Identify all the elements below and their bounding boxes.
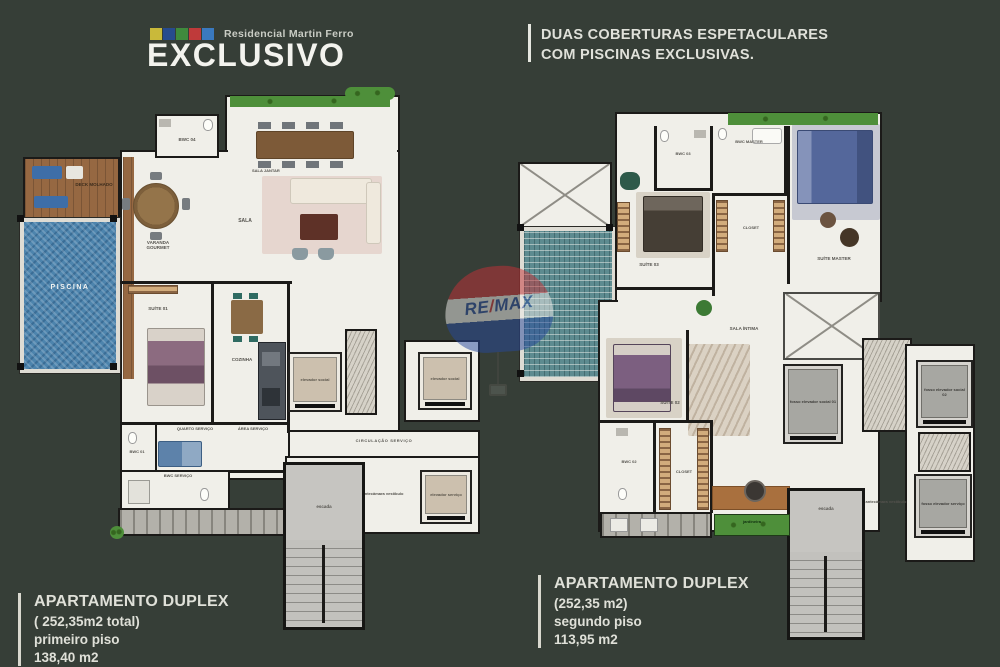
ac-unit (640, 518, 658, 532)
label-jardineira: jardineira (722, 520, 782, 525)
round-table (133, 183, 179, 229)
label-closet-master: CLOSET (728, 226, 774, 231)
balloon-basket (489, 384, 507, 396)
wall (615, 287, 715, 290)
dining-table (256, 131, 354, 159)
chair (122, 198, 130, 210)
elevator-shaft-wall (345, 329, 377, 415)
chairs-row (233, 336, 261, 342)
label-escada: escada (295, 504, 353, 509)
toilet (618, 488, 627, 500)
wardrobe (617, 202, 630, 252)
sofa (366, 182, 381, 244)
armchair (318, 248, 334, 260)
poster-canvas: Residencial Martin Ferro EXCLUSIVO DUAS … (0, 0, 1000, 667)
tagline: DUAS COBERTURAS ESPETACULARES COM PISCIN… (541, 25, 828, 66)
room-circulacao (288, 430, 480, 458)
elevator-door (923, 420, 966, 424)
elevator-door (790, 436, 836, 440)
toilet (718, 128, 727, 140)
void-open-area (518, 162, 612, 228)
lounger (34, 196, 68, 208)
label-bwc04: BWC 04 (155, 137, 219, 142)
plants (345, 87, 395, 100)
garden (714, 514, 790, 536)
caption-area-total: (252,35 m2) (554, 595, 788, 613)
tagline-bar (528, 24, 531, 62)
wall (120, 422, 290, 425)
bed (158, 441, 202, 467)
stove (262, 388, 280, 406)
pool-corner (17, 363, 24, 370)
label-suite-master: SUÍTE MASTER (798, 256, 870, 261)
armchair (292, 248, 308, 260)
label-area-servico: ÁREA SERVIÇO (228, 427, 278, 432)
chairs-row (258, 122, 352, 129)
label-bwc03: BWC 03 (656, 152, 710, 157)
sink (616, 428, 628, 436)
tv-console (300, 214, 338, 240)
balloon-rope (497, 352, 499, 384)
caption-second-floor: APARTAMENTO DUPLEX (252,35 m2) segundo p… (538, 575, 788, 648)
label-bwc01: BWC 01 (121, 450, 153, 455)
wall (710, 126, 713, 190)
kitchen-table (231, 300, 263, 334)
caption-area-total: ( 252,35m2 total) (34, 613, 273, 631)
label-deck: DECK MOLHADO (70, 182, 118, 187)
toilet (660, 130, 669, 142)
caption-area: 113,95 m2 (554, 631, 788, 649)
chairs-row (233, 293, 261, 299)
caption-title: APARTAMENTO DUPLEX (34, 593, 273, 611)
pool-corner (110, 215, 117, 222)
wardrobe (128, 285, 178, 294)
label-suite01: SUÍTE 01 (136, 306, 180, 311)
wall (686, 330, 689, 422)
wall (654, 188, 713, 191)
elevator-door (921, 530, 965, 534)
elevator-servico: elevador serviço (420, 470, 472, 524)
pool-corner (110, 363, 117, 370)
plants (620, 172, 640, 190)
bed (643, 196, 703, 252)
pool-corner (517, 224, 524, 231)
plants (696, 300, 712, 316)
stair-rail (322, 545, 325, 623)
sink (694, 130, 706, 138)
label-cozinha: COZINHA (222, 357, 262, 362)
sink (159, 119, 171, 127)
label-varanda-gourmet: VARANDA GOURMET (139, 240, 177, 251)
elevator-shaft-wall (918, 432, 971, 472)
wall (211, 283, 214, 424)
elevator-door (425, 402, 465, 406)
wall (654, 126, 657, 190)
wardrobe (773, 200, 785, 252)
elevator-pit-social-2: fosso elevador social 02 (916, 360, 973, 428)
lounger (66, 166, 83, 179)
wall (787, 126, 790, 284)
balloon-max: MAX (493, 292, 534, 316)
pool-corner (606, 224, 613, 231)
label-sala: SALA (228, 218, 262, 224)
caption-first-floor: APARTAMENTO DUPLEX ( 252,35m2 total) pri… (18, 593, 273, 666)
label-antecamara: antecâmara vestíbulo (358, 492, 408, 497)
chairs-row (258, 161, 352, 168)
lounger (32, 166, 62, 179)
label-escada-2: escada (800, 506, 852, 511)
label-bwc-servico: BWC SERVIÇO (146, 474, 210, 479)
elevator-pit-servico: fosso elevador serviço (914, 474, 972, 538)
room-piscina (20, 218, 120, 373)
wall (120, 281, 292, 284)
caption-floor: primeiro piso (34, 631, 273, 649)
caption-area: 138,40 m2 (34, 649, 273, 667)
planter-strip (728, 113, 878, 125)
label-bwc-master: BWC MASTER (714, 140, 784, 145)
pool-corner (17, 215, 24, 222)
sofa (290, 178, 372, 204)
wall (653, 423, 656, 513)
label-circulacao: CIRCULAÇÃO SERVIÇO (300, 439, 468, 444)
elevator-door (427, 516, 465, 520)
wardrobe (716, 200, 728, 252)
sink (262, 352, 280, 366)
wardrobe (659, 428, 671, 510)
label-quarto-servico: QUARTO SERVIÇO (170, 427, 220, 432)
pouf (840, 228, 859, 247)
toilet (203, 119, 213, 131)
tagline-line1: DUAS COBERTURAS ESPETACULARES (541, 25, 828, 45)
shower (128, 480, 150, 504)
chair (182, 198, 190, 210)
wall (712, 193, 787, 196)
chair (150, 232, 162, 240)
balcony-edge (118, 508, 286, 536)
bed (797, 130, 873, 204)
elevator-pit-label: fosso elevador serviço (919, 479, 967, 528)
caption-floor: segundo piso (554, 613, 788, 631)
remax-watermark: RE/MAX (445, 266, 560, 401)
headline-exclusivo: EXCLUSIVO (147, 37, 345, 74)
wall (712, 196, 715, 296)
label-bwc02: BWC 02 (608, 460, 650, 465)
stair-rail (824, 556, 827, 632)
pouf (820, 212, 836, 228)
elevator-pit-social-1: fosso elevador social 01 (783, 364, 843, 444)
fireplace (744, 480, 766, 502)
label-antecamara-2: antecâmara vestíbulo (862, 500, 910, 505)
elevator-cab: elevador social (293, 357, 337, 402)
elevator-social-1: elevador social (288, 352, 342, 412)
elevator-cab: elevador serviço (425, 475, 467, 514)
label-sala-intima: SALA ÍNTIMA (720, 326, 768, 331)
label-piscina: PISCINA (20, 284, 120, 292)
wall (155, 425, 157, 473)
toilet (200, 488, 209, 501)
label-closet02: CLOSET (658, 470, 710, 475)
tagline-line2: COM PISCINAS EXCLUSIVAS. (541, 45, 828, 65)
label-suite03: SUÍTE 03 (626, 262, 672, 267)
plants (110, 526, 124, 539)
label-sala-jantar: SALA JANTAR (252, 169, 308, 174)
bed (147, 328, 205, 406)
balloon-re: RE (463, 297, 490, 319)
chair (150, 172, 162, 180)
wardrobe (697, 428, 709, 510)
elevator-pit-label: fosso elevador social 02 (921, 365, 968, 418)
caption-title: APARTAMENTO DUPLEX (554, 575, 788, 593)
toilet (128, 432, 137, 444)
wood-floor-strip (123, 157, 134, 379)
ac-unit (610, 518, 628, 532)
elevator-door (295, 404, 335, 408)
elevator-pit-label: fosso elevador social 01 (788, 369, 838, 434)
